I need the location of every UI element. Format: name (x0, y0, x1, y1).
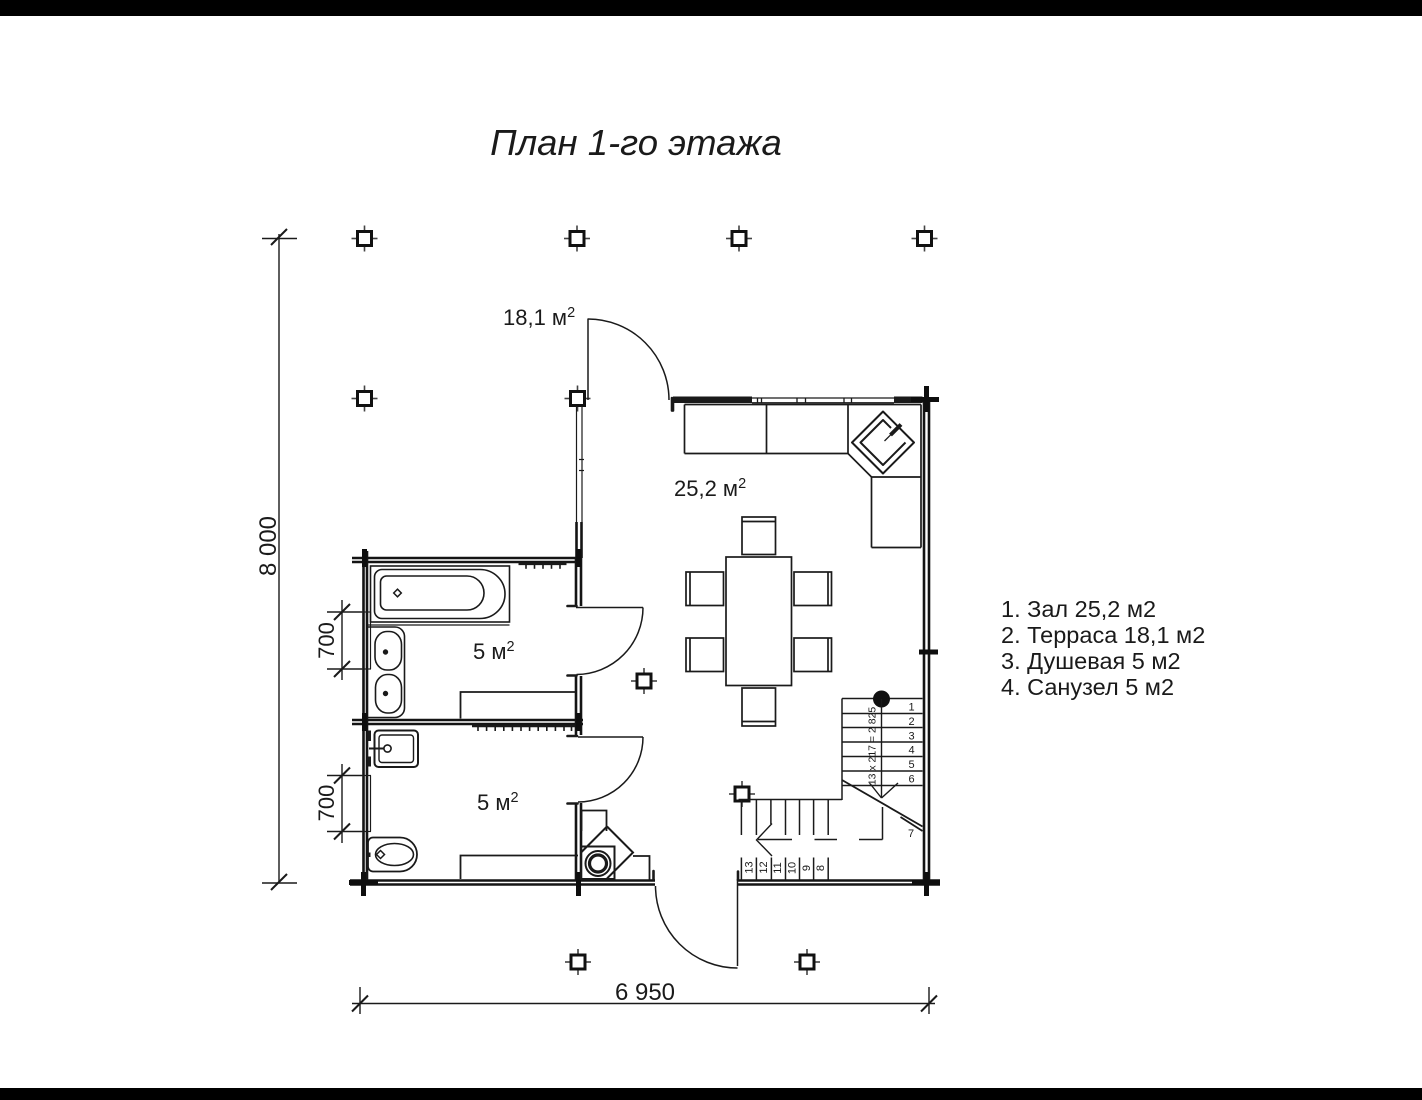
svg-text:11: 11 (772, 862, 784, 873)
svg-text:1: 1 (908, 702, 914, 714)
svg-text:5 м2: 5 м2 (477, 790, 519, 815)
svg-text:25,2 м2: 25,2 м2 (674, 476, 746, 501)
svg-text:7: 7 (908, 828, 914, 840)
svg-text:13 x 217 = 2 825: 13 x 217 = 2 825 (867, 707, 879, 786)
svg-text:8 000: 8 000 (255, 516, 282, 576)
svg-text:3. Душевая 5 м2: 3. Душевая 5 м2 (1001, 648, 1181, 674)
svg-text:8: 8 (815, 865, 827, 871)
svg-text:6: 6 (908, 774, 914, 786)
svg-text:5 м2: 5 м2 (473, 639, 515, 664)
svg-text:3: 3 (908, 731, 914, 743)
svg-text:План 1-го этажа: План 1-го этажа (490, 122, 782, 163)
svg-text:18,1 м2: 18,1 м2 (503, 305, 575, 330)
svg-text:10: 10 (787, 862, 799, 874)
svg-text:4: 4 (908, 745, 914, 757)
svg-text:5: 5 (908, 759, 914, 771)
svg-text:13: 13 (744, 861, 756, 873)
svg-text:4. Санузел 5 м2: 4. Санузел 5 м2 (1001, 674, 1174, 700)
svg-text:2. Терраса 18,1 м2: 2. Терраса 18,1 м2 (1001, 622, 1205, 648)
svg-text:6 950: 6 950 (615, 979, 675, 1006)
svg-text:700: 700 (314, 785, 339, 822)
svg-text:1. Зал 25,2 м2: 1. Зал 25,2 м2 (1001, 596, 1156, 622)
svg-text:12: 12 (758, 861, 770, 873)
svg-text:9: 9 (801, 865, 813, 871)
svg-text:2: 2 (908, 716, 914, 728)
svg-text:700: 700 (314, 622, 339, 659)
